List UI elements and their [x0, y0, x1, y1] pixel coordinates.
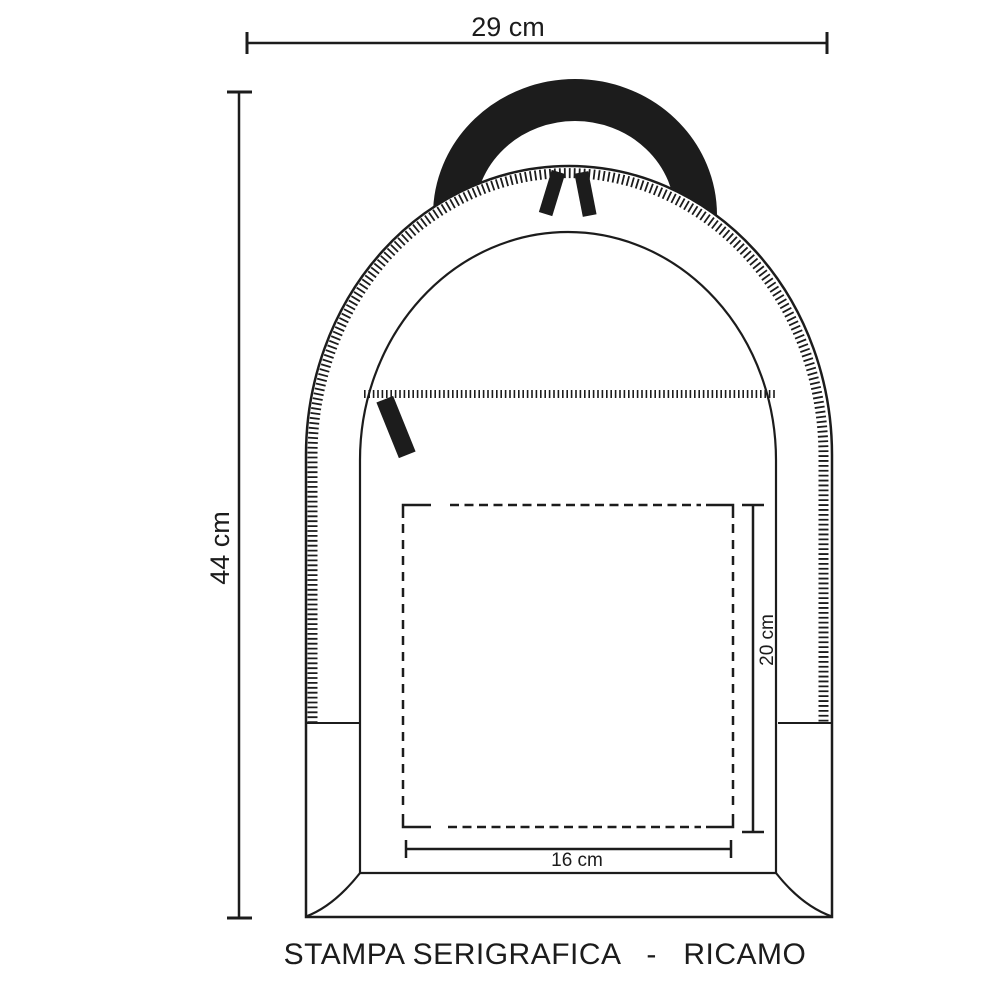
dimension-bag-width: 29 cm	[247, 12, 827, 54]
print-width-label: 16 cm	[551, 850, 603, 871]
print-height-label: 20 cm	[757, 614, 778, 666]
front-panel	[360, 232, 776, 873]
caption: STAMPA SERIGRAFICA - RICAMO	[284, 938, 807, 971]
bag-width-label: 29 cm	[471, 12, 545, 42]
dimension-bag-height: 44 cm	[205, 92, 252, 918]
drawing-canvas: 29 cm 44 cm 20 cm 16 cm STAMPA SERIGRAFI…	[0, 0, 1000, 1000]
backpack-technical-drawing: 29 cm 44 cm 20 cm 16 cm STAMPA SERIGRAFI…	[0, 0, 1000, 1000]
bag-height-label: 44 cm	[205, 511, 235, 585]
